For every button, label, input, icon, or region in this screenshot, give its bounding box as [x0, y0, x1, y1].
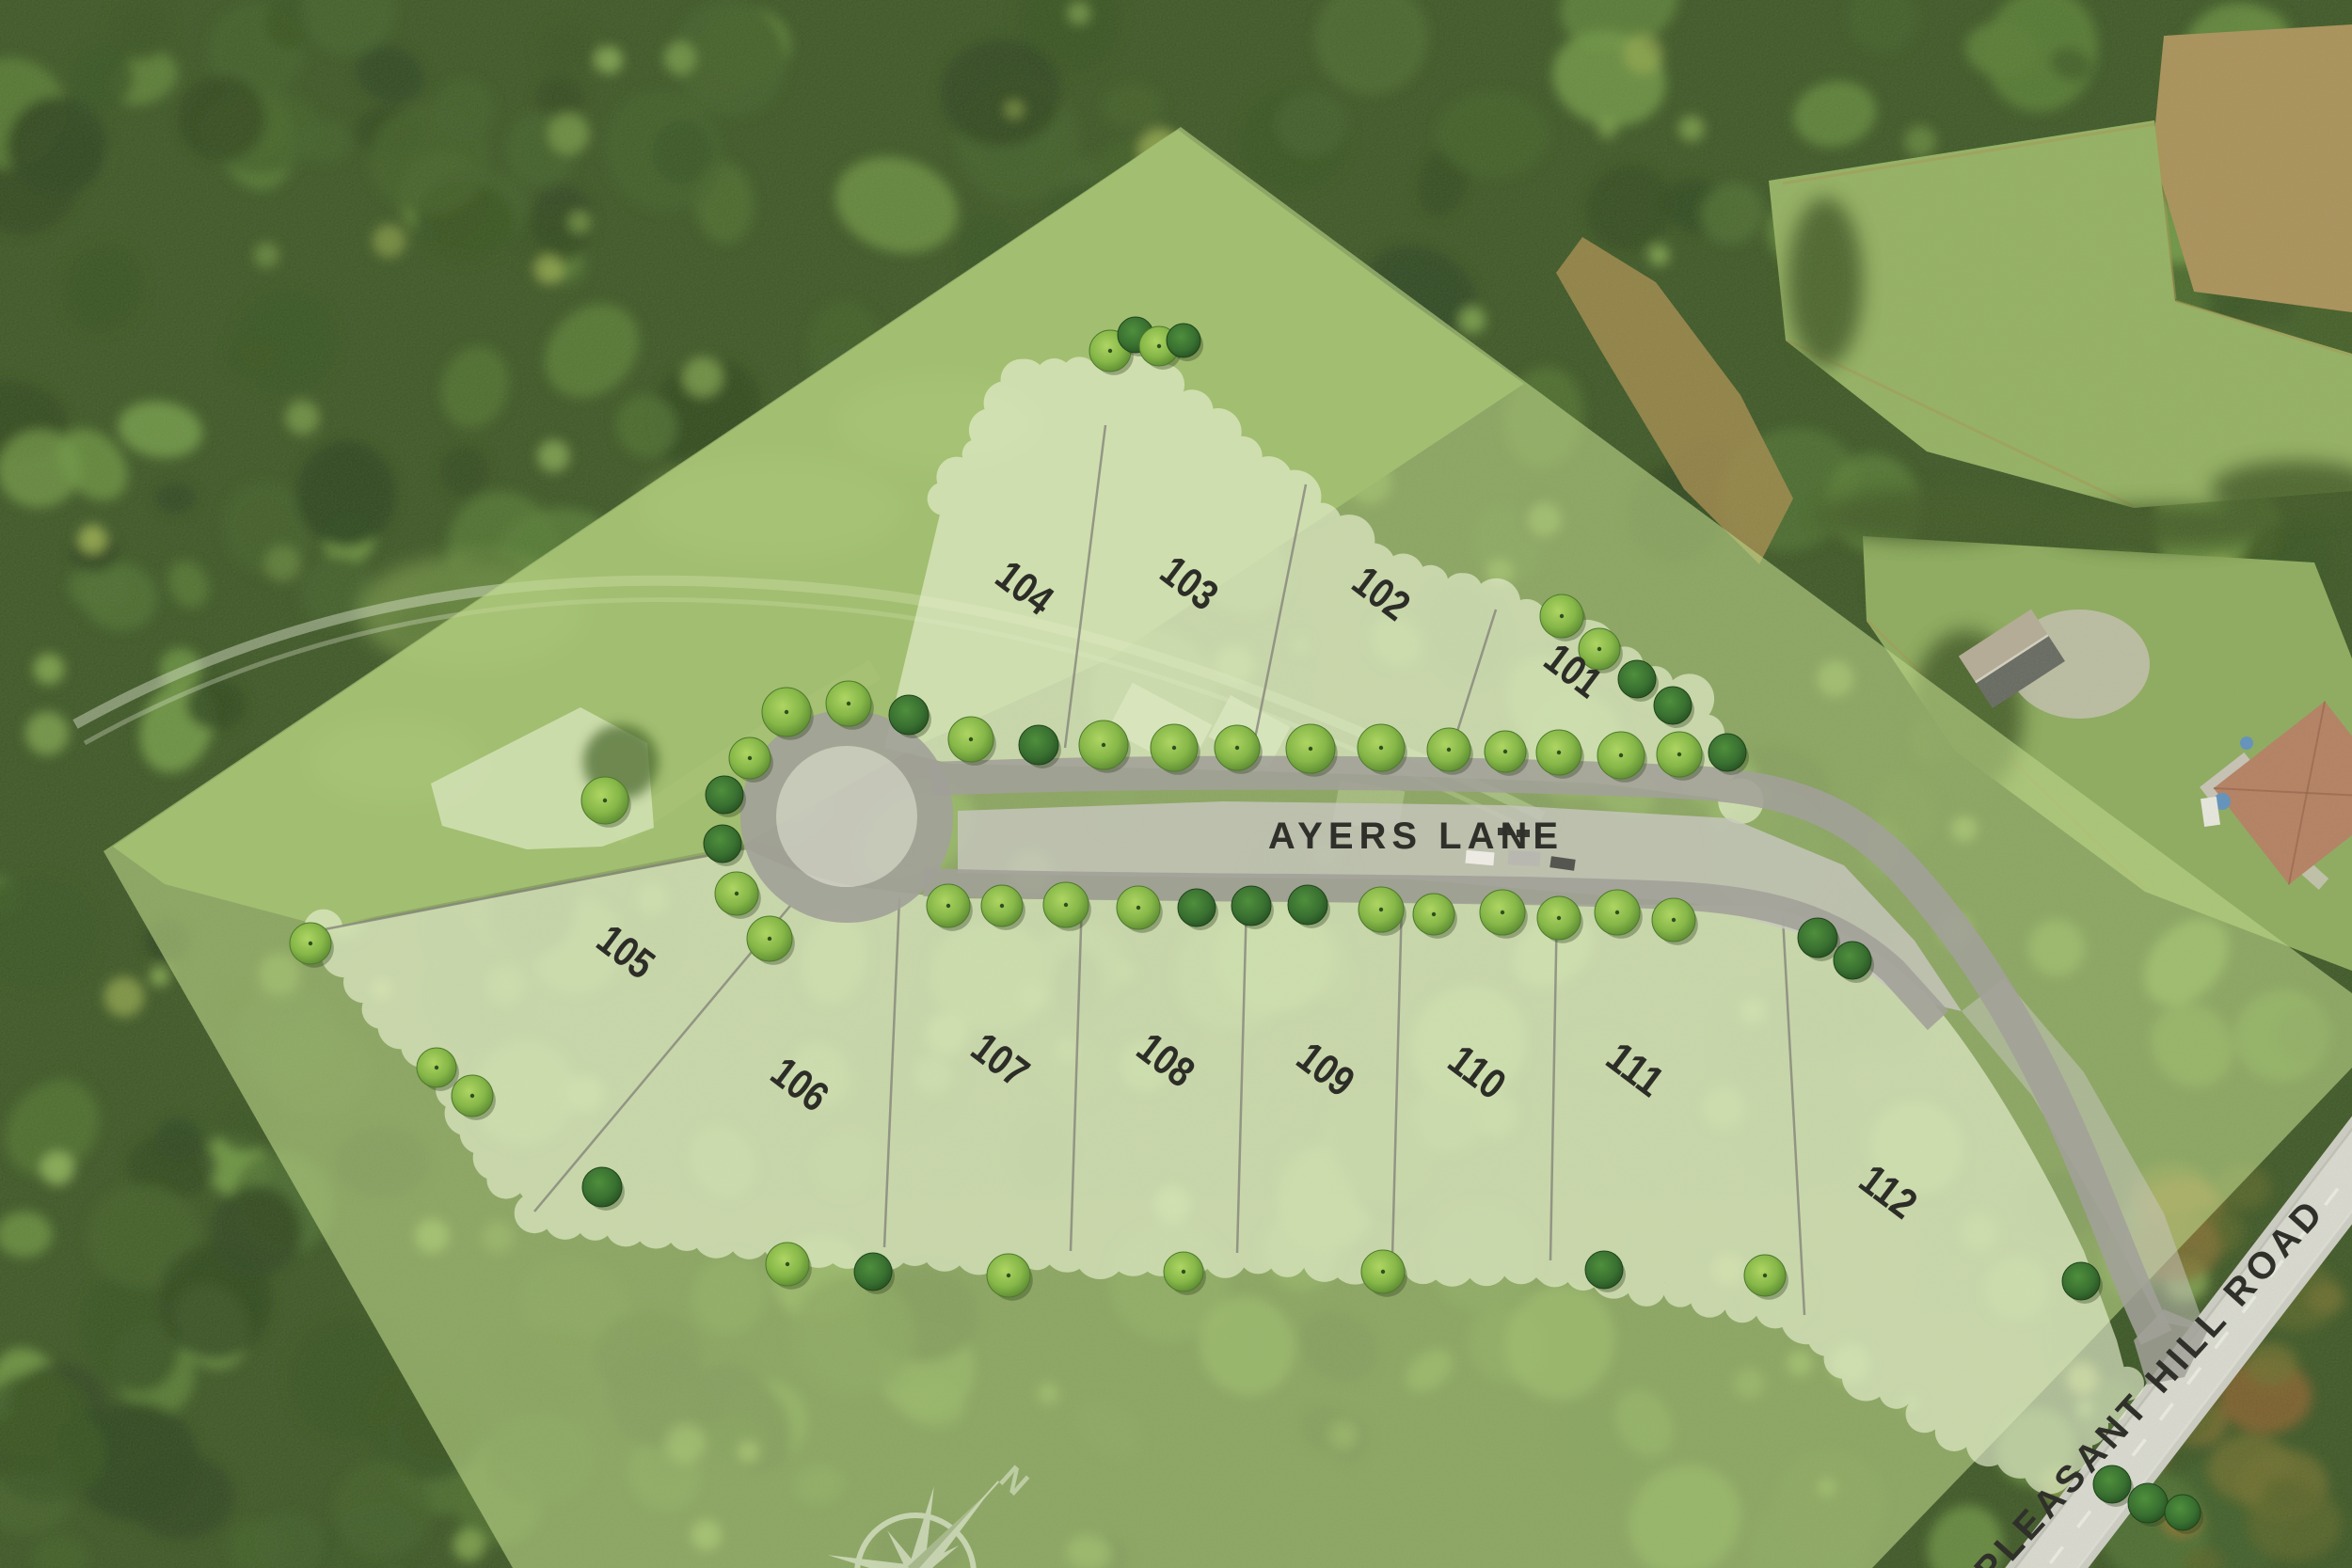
- street-label-ayers-lane: AYERS LANE: [1268, 816, 1564, 857]
- cul-de-sac-island: [776, 746, 917, 887]
- site-plan-page: AYERS LANE PLEASANT HILL ROAD 101 102 10…: [0, 0, 2352, 1568]
- site-plan-map: AYERS LANE PLEASANT HILL ROAD 101 102 10…: [0, 0, 2352, 1568]
